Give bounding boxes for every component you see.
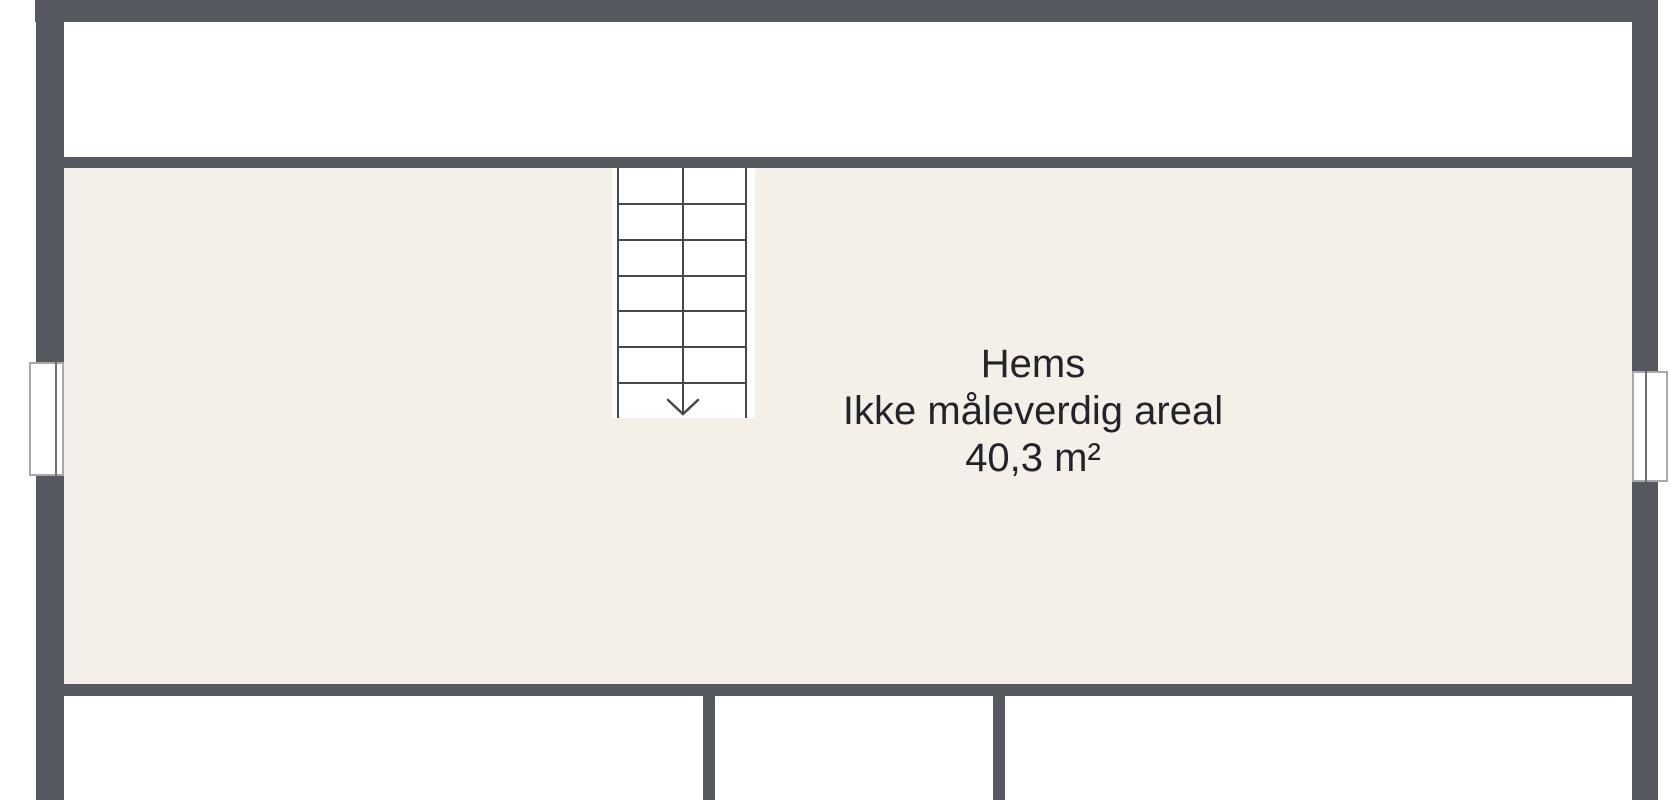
window-right (1632, 371, 1668, 482)
room-label: Hems Ikke måleverdig areal 40,3 m² (783, 341, 1283, 482)
wall-exterior-top (35, 0, 1658, 22)
room-lower-right (1005, 696, 1632, 800)
wall-lower-divider-left (703, 696, 715, 800)
stair-stringer-right (745, 168, 747, 418)
room-note-text: Ikke måleverdig areal (783, 388, 1283, 435)
window-left-glass-line (55, 362, 57, 476)
room-lower-center (715, 696, 993, 800)
window-right-glass-line (1645, 371, 1647, 482)
wall-lower-divider-right (993, 696, 1005, 800)
room-lower-left (64, 696, 703, 800)
staircase (612, 168, 755, 418)
floorplan-loft: Hems Ikke måleverdig areal 40,3 m² (0, 0, 1670, 800)
window-left (29, 362, 64, 476)
room-area-text: 40,3 m² (783, 435, 1283, 482)
wall-interior-bottom (64, 684, 1632, 696)
wall-interior-top (64, 157, 1632, 168)
room-name-text: Hems (783, 341, 1283, 388)
stairs-down-arrow-icon (666, 398, 700, 416)
stair-direction-line (682, 168, 684, 414)
stair-stringer-left (617, 168, 619, 418)
room-upper-strip (64, 22, 1632, 157)
